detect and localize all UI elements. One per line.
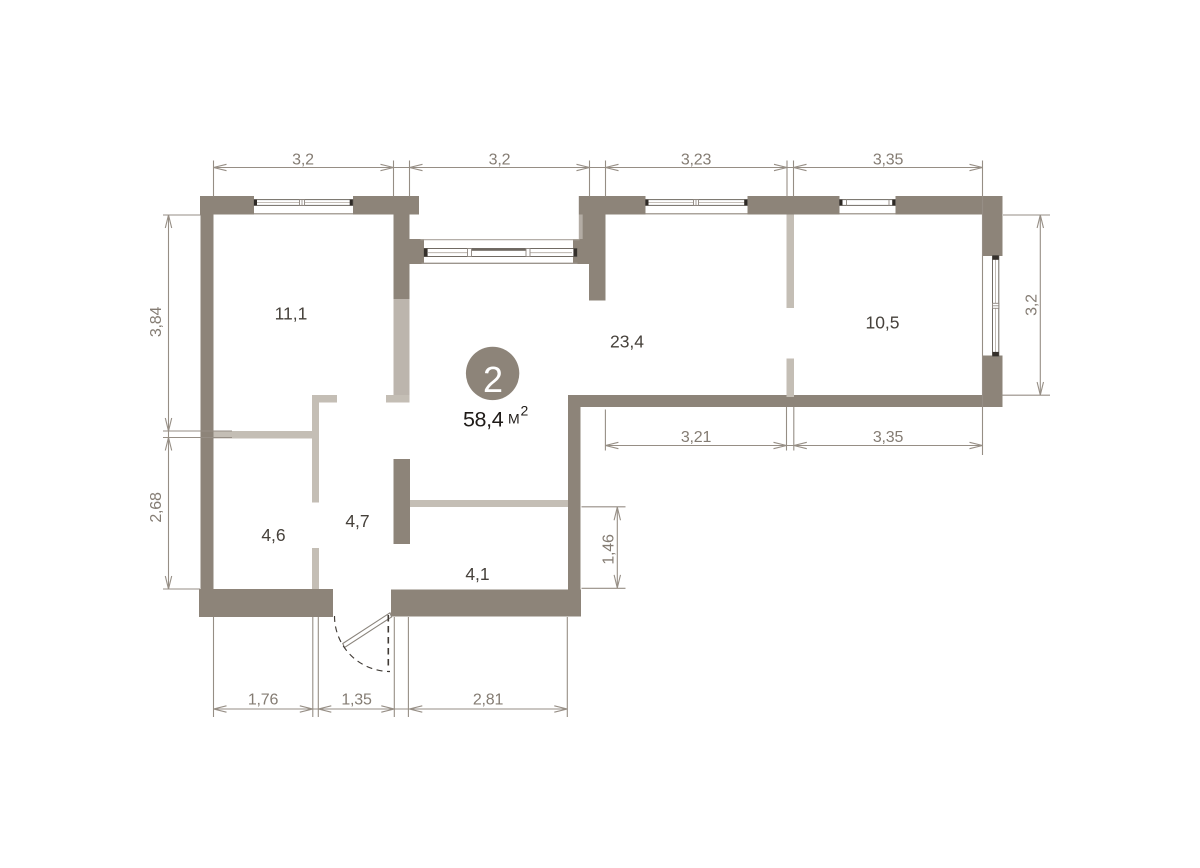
svg-text:2,81: 2,81: [473, 691, 504, 708]
svg-text:3,2: 3,2: [1024, 294, 1041, 316]
svg-text:3,2: 3,2: [489, 151, 511, 168]
svg-text:2,68: 2,68: [148, 492, 165, 523]
svg-text:4,1: 4,1: [465, 564, 489, 584]
svg-text:1,46: 1,46: [601, 534, 618, 565]
svg-text:4,6: 4,6: [261, 525, 285, 545]
svg-text:М: М: [508, 411, 520, 427]
svg-text:1,76: 1,76: [248, 691, 279, 708]
svg-text:3,35: 3,35: [873, 429, 904, 446]
svg-text:3,84: 3,84: [148, 307, 165, 338]
svg-text:3,21: 3,21: [681, 429, 712, 446]
svg-text:23,4: 23,4: [610, 332, 644, 352]
svg-text:3,2: 3,2: [292, 151, 314, 168]
svg-text:4,7: 4,7: [345, 511, 369, 531]
svg-text:10,5: 10,5: [865, 313, 899, 333]
svg-text:58,4: 58,4: [463, 408, 504, 432]
svg-text:11,1: 11,1: [275, 304, 308, 324]
svg-text:2: 2: [521, 403, 529, 419]
svg-text:3,23: 3,23: [681, 151, 712, 168]
svg-text:2: 2: [483, 359, 503, 400]
svg-text:1,35: 1,35: [341, 691, 372, 708]
svg-text:3,35: 3,35: [873, 151, 904, 168]
